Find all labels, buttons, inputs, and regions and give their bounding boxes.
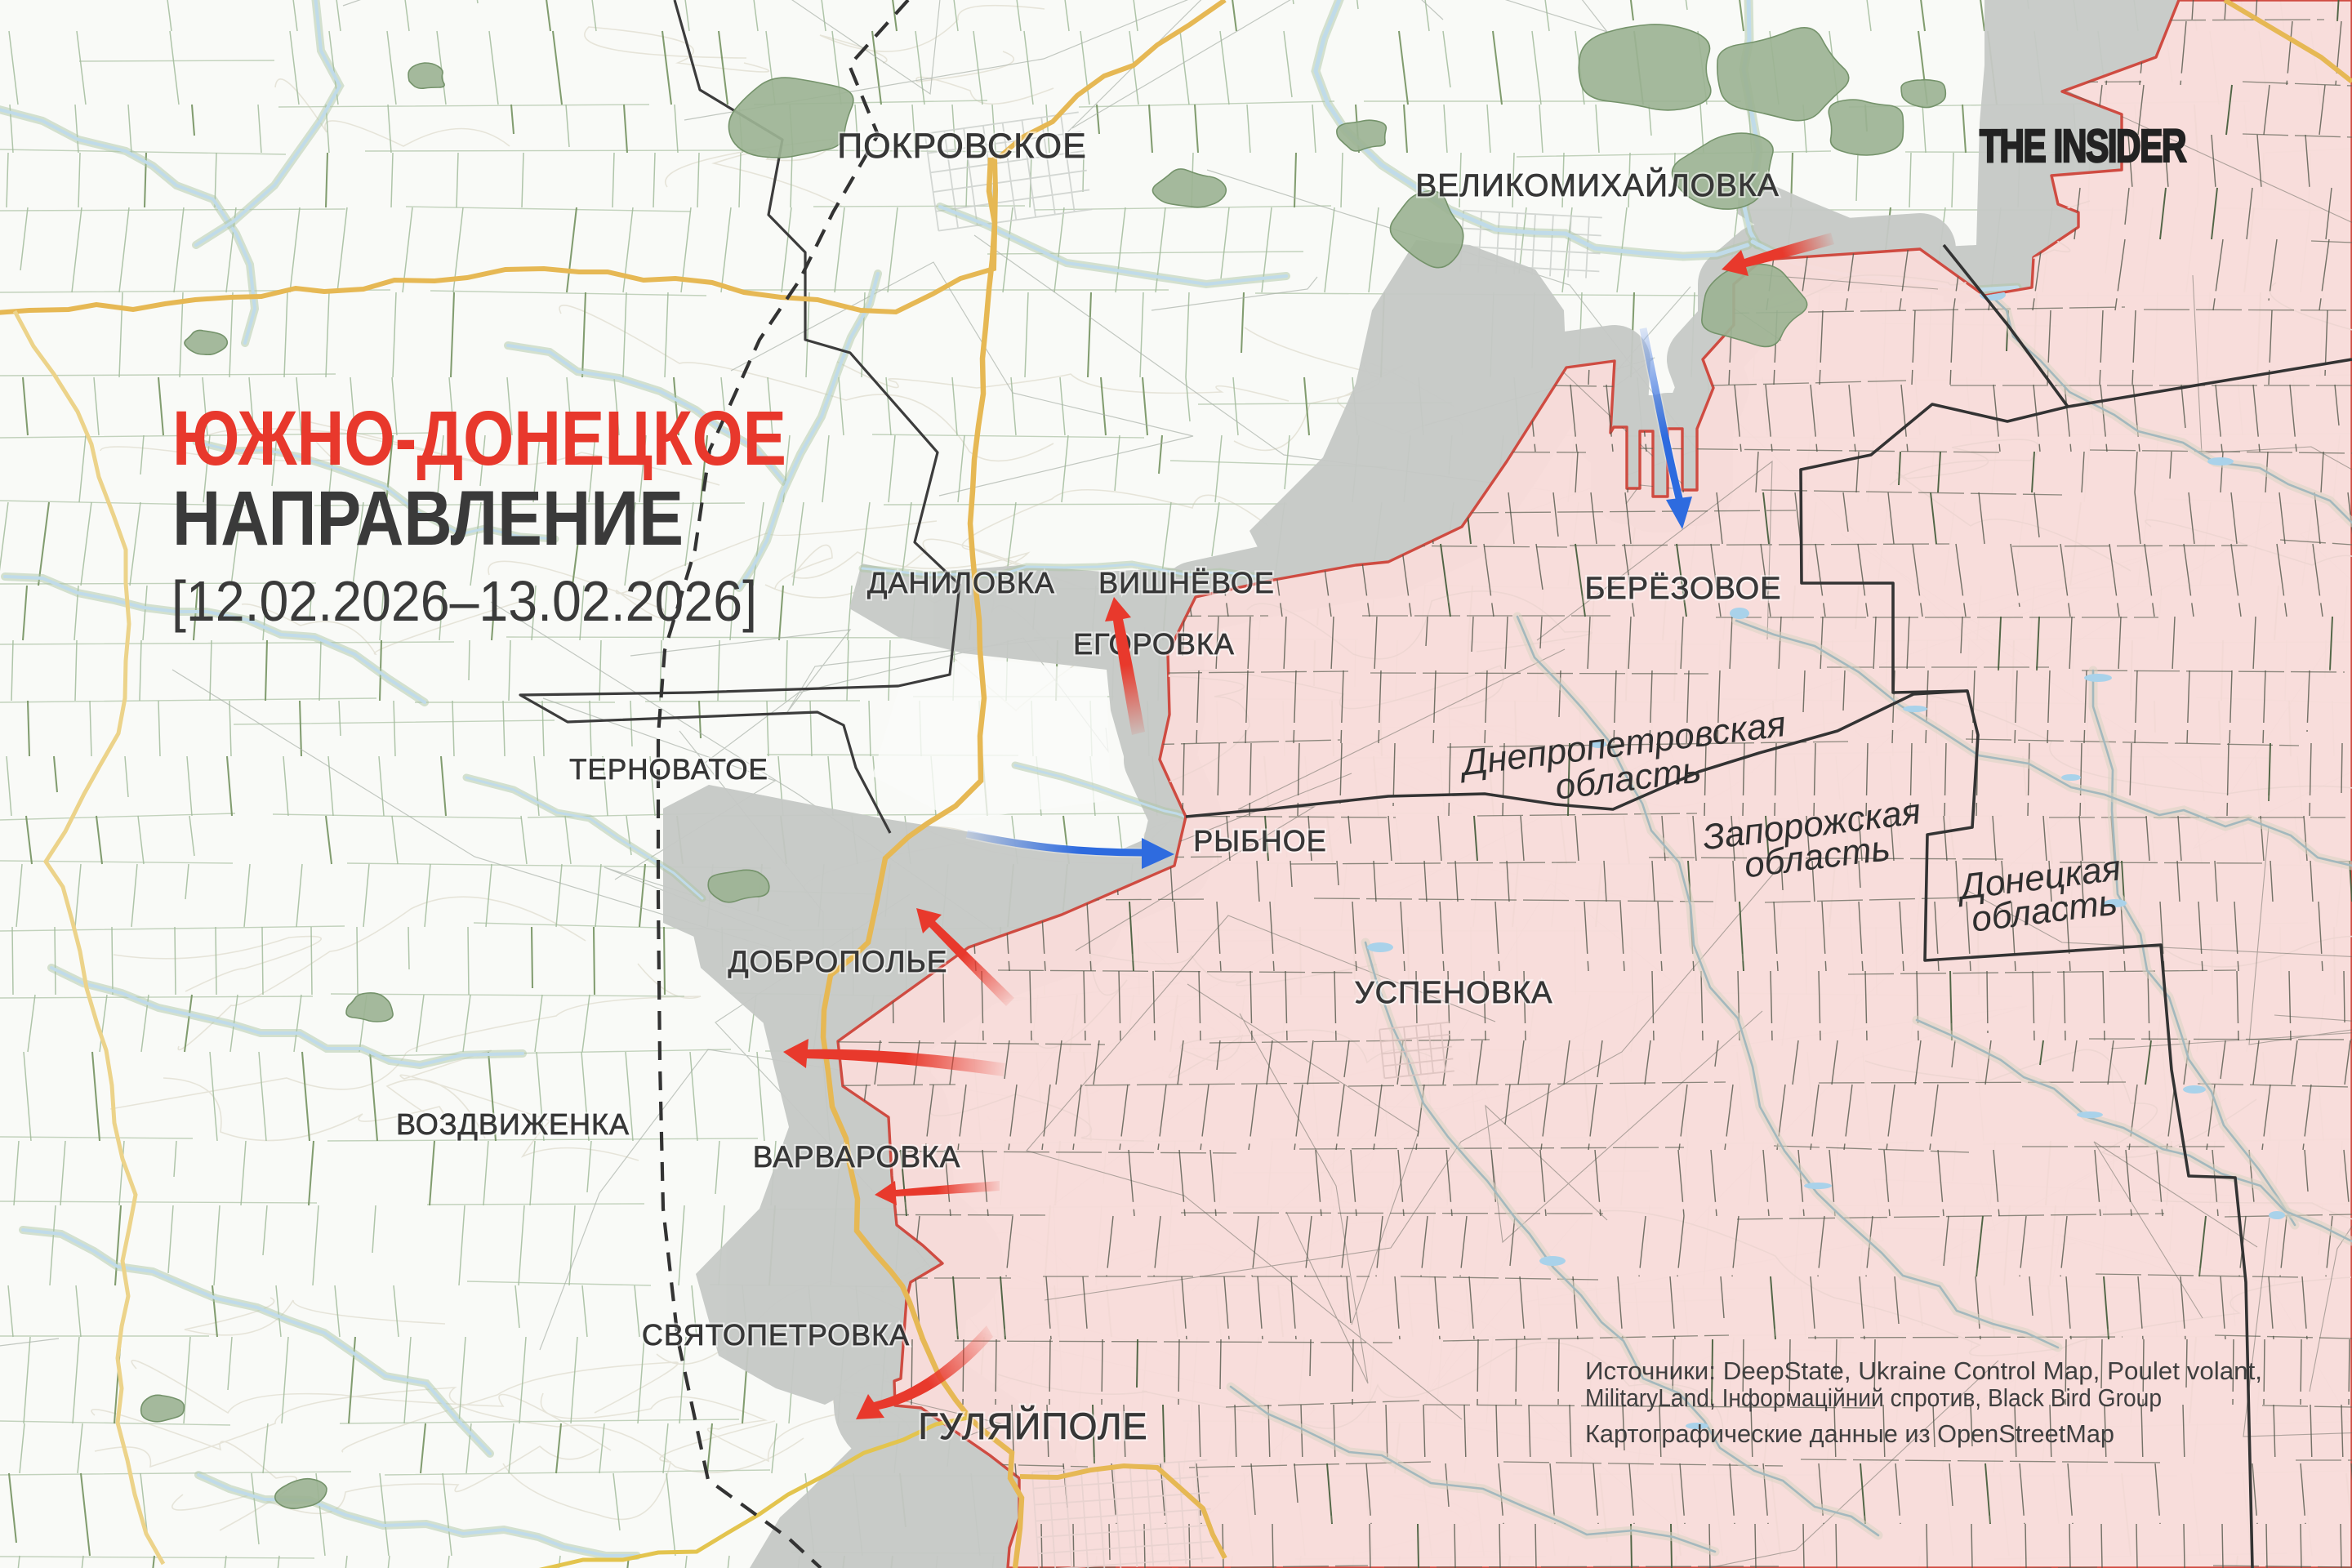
svg-text:Картографические данные из Ope: Картографические данные из OpenStreetMap [1585, 1419, 2114, 1448]
svg-text:СВЯТОПЕТРОВКА: СВЯТОПЕТРОВКА [642, 1318, 910, 1352]
svg-text:Источники: DeepState, Ukraine: Источники: DeepState, Ukraine Control Ma… [1585, 1356, 2262, 1385]
svg-text:ГУЛЯЙПОЛЕ: ГУЛЯЙПОЛЕ [918, 1405, 1147, 1447]
svg-text:ВИШНЁВОЕ: ВИШНЁВОЕ [1098, 566, 1275, 599]
svg-text:ТЕРНОВАТОЕ: ТЕРНОВАТОЕ [569, 754, 768, 786]
svg-text:ЕГОРОВКА: ЕГОРОВКА [1073, 627, 1235, 661]
svg-text:РЫБНОЕ: РЫБНОЕ [1193, 824, 1327, 857]
svg-text:УСПЕНОВКА: УСПЕНОВКА [1354, 976, 1552, 1010]
svg-text:НАПРАВЛЕНИЕ: НАПРАВЛЕНИЕ [172, 475, 684, 562]
svg-text:ВЕЛИКОМИХАЙЛОВКА: ВЕЛИКОМИХАЙЛОВКА [1415, 167, 1780, 203]
svg-text:ДОБРОПОЛЬЕ: ДОБРОПОЛЬЕ [728, 945, 948, 978]
svg-text:ЮЖНО-ДОНЕЦКОЕ: ЮЖНО-ДОНЕЦКОЕ [172, 395, 786, 482]
svg-text:ДАНИЛОВКА: ДАНИЛОВКА [867, 566, 1055, 599]
svg-text:ПОКРОВСКОЕ: ПОКРОВСКОЕ [837, 127, 1087, 166]
svg-text:[12.02.2026–13.02.2026]: [12.02.2026–13.02.2026] [171, 569, 757, 633]
svg-text:БЕРЁЗОВОЕ: БЕРЁЗОВОЕ [1584, 572, 1781, 606]
svg-text:MilitaryLand, Інформаційний сп: MilitaryLand, Інформаційний спротив, Bla… [1585, 1383, 2162, 1412]
svg-text:THE INSIDER: THE INSIDER [1980, 120, 2186, 172]
svg-text:ВОЗДВИЖЕНКА: ВОЗДВИЖЕНКА [396, 1107, 630, 1141]
svg-text:ВАРВАРОВКА: ВАРВАРОВКА [753, 1140, 961, 1174]
